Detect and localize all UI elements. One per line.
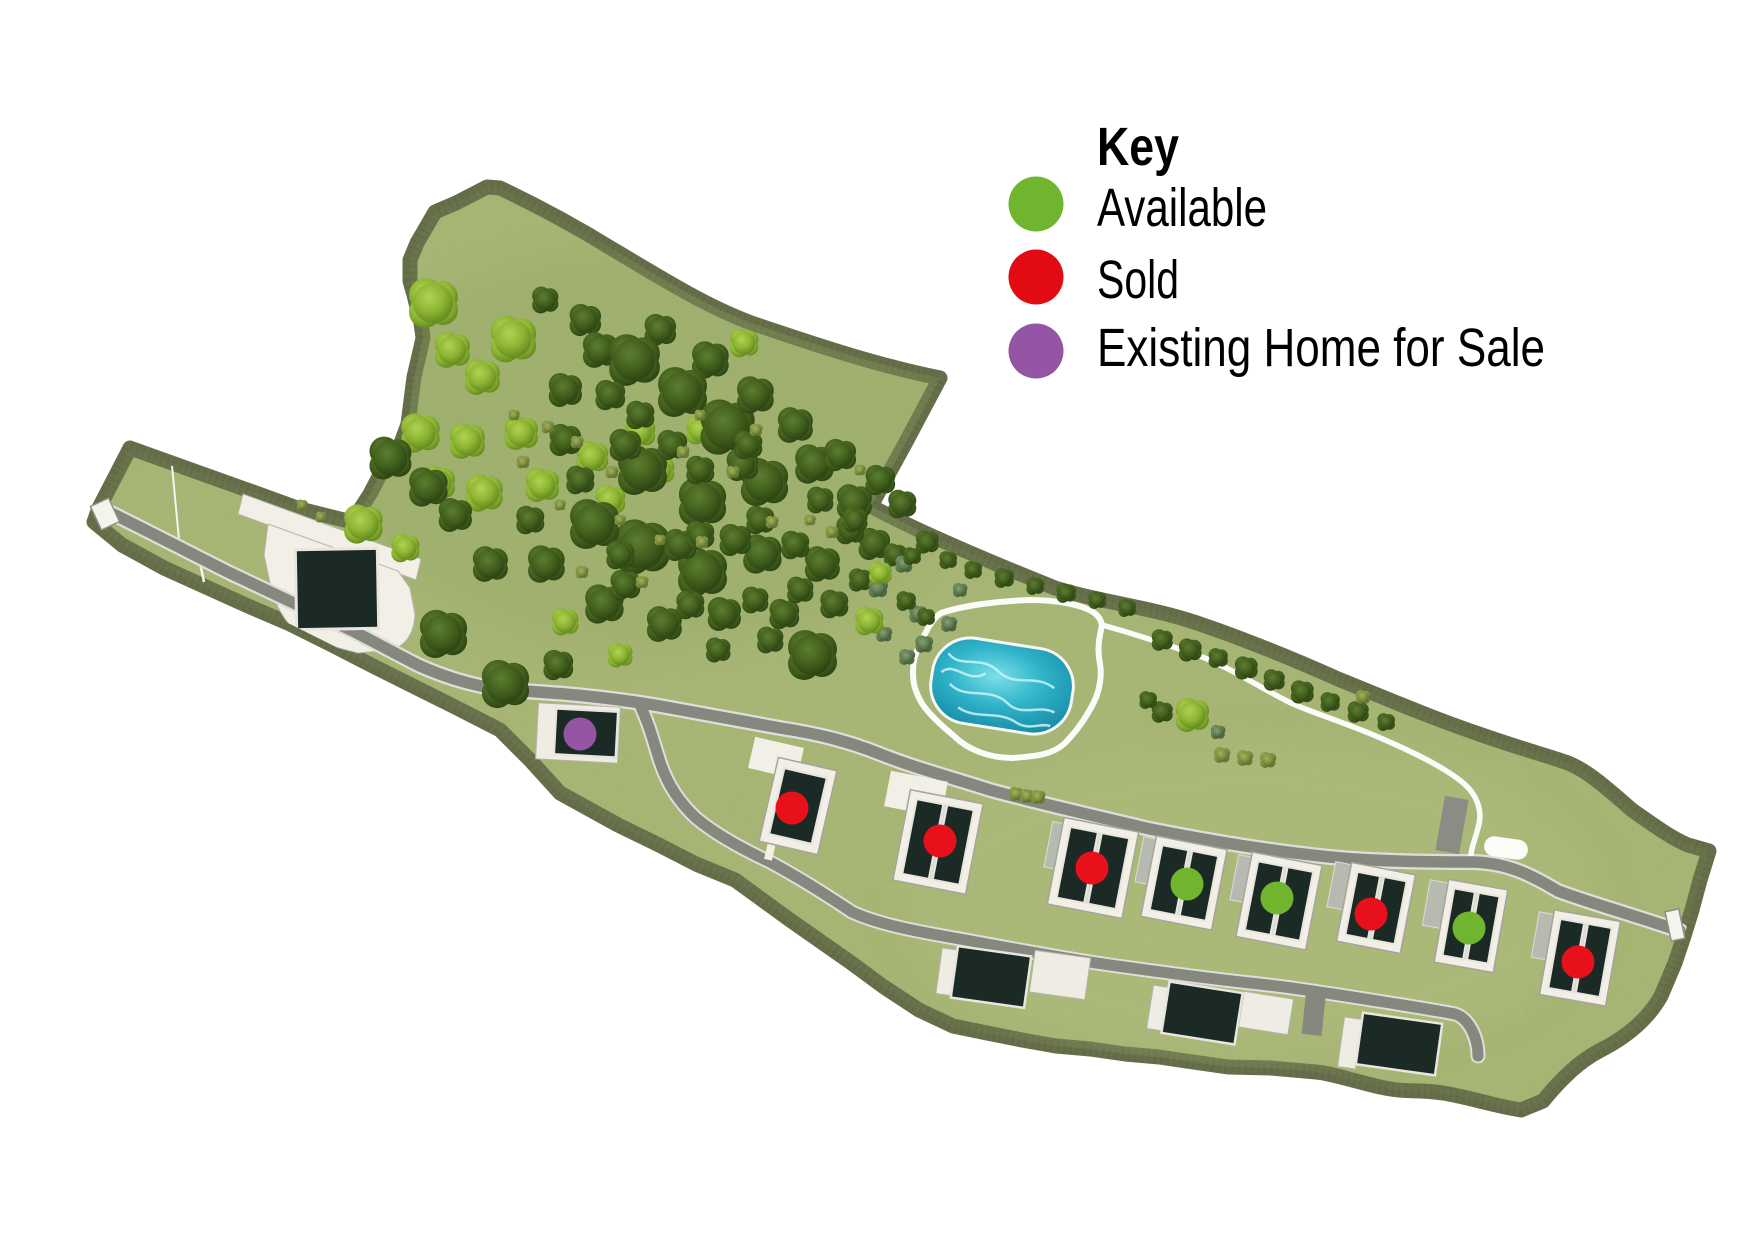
- svg-text:Available: Available: [1097, 178, 1267, 238]
- svg-text:Existing Home for Sale: Existing Home for Sale: [1097, 318, 1545, 378]
- svg-text:Sold: Sold: [1097, 250, 1179, 310]
- svg-text:Key: Key: [1097, 117, 1179, 177]
